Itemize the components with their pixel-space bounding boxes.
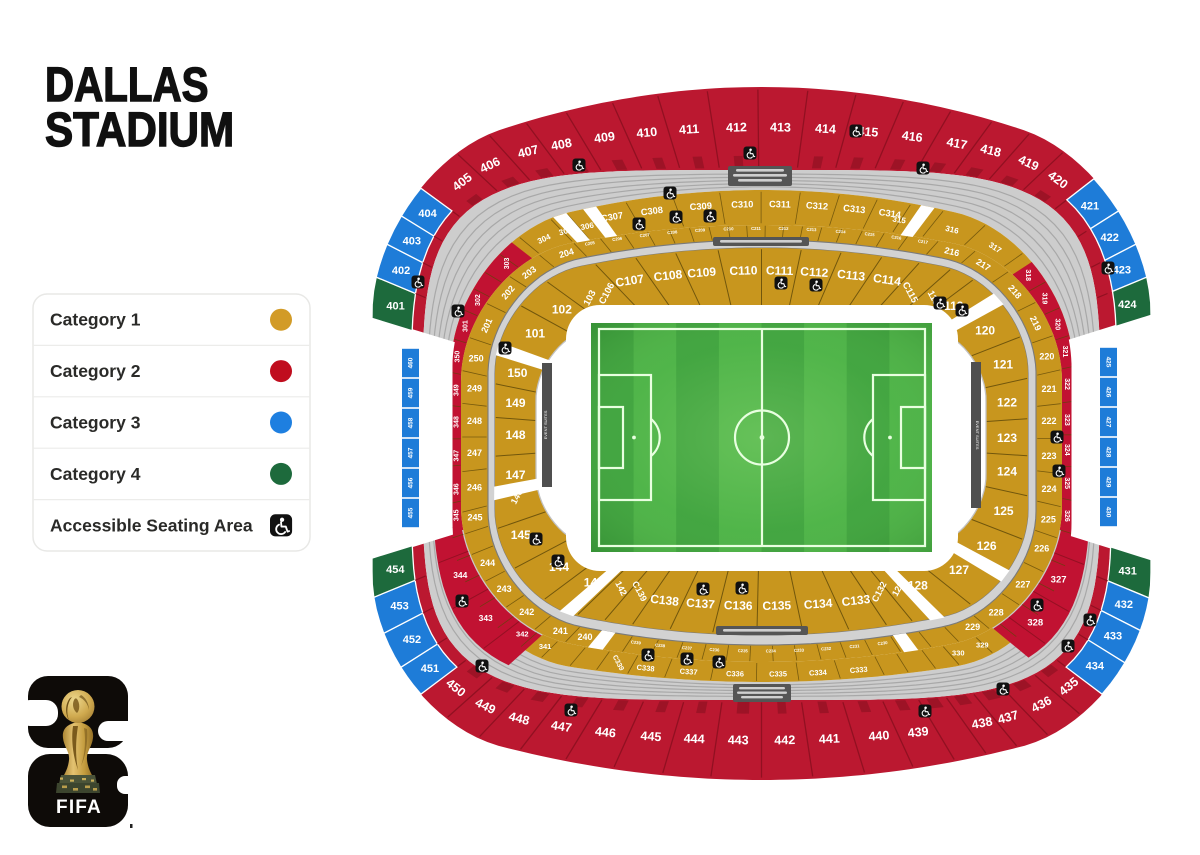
svg-text:401: 401 <box>386 301 404 313</box>
svg-text:143: 143 <box>584 576 604 590</box>
svg-text:C112: C112 <box>800 264 829 280</box>
svg-text:C211: C211 <box>751 226 761 231</box>
svg-text:453: 453 <box>390 600 408 612</box>
svg-text:C213: C213 <box>806 227 817 233</box>
svg-text:443: 443 <box>728 733 749 747</box>
svg-text:325: 325 <box>1063 477 1070 489</box>
svg-text:227: 227 <box>1015 579 1030 589</box>
svg-text:STADIUM: STADIUM <box>45 102 234 156</box>
svg-text:C334: C334 <box>809 668 828 678</box>
svg-text:C338: C338 <box>636 663 655 674</box>
svg-text:102: 102 <box>552 303 572 317</box>
svg-text:442: 442 <box>774 733 795 747</box>
svg-text:452: 452 <box>403 634 421 646</box>
svg-text:222: 222 <box>1041 416 1056 426</box>
svg-text:121: 121 <box>993 357 1013 371</box>
svg-text:411: 411 <box>679 122 700 137</box>
svg-text:432: 432 <box>1115 599 1133 611</box>
svg-text:350: 350 <box>455 351 462 363</box>
svg-text:EVENT SUITES: EVENT SUITES <box>543 410 548 439</box>
svg-text:348: 348 <box>454 416 461 428</box>
svg-text:223: 223 <box>1041 451 1056 461</box>
svg-text:319: 319 <box>1041 293 1048 305</box>
svg-text:346: 346 <box>453 483 460 495</box>
svg-text:446: 446 <box>594 724 616 740</box>
svg-text:126: 126 <box>977 539 997 553</box>
svg-text:221: 221 <box>1041 384 1056 394</box>
svg-text:C210: C210 <box>723 226 734 231</box>
svg-text:329: 329 <box>976 640 989 649</box>
svg-text:246: 246 <box>467 483 482 493</box>
svg-text:150: 150 <box>507 366 527 380</box>
svg-text:412: 412 <box>726 120 747 134</box>
svg-text:428: 428 <box>1104 447 1111 458</box>
svg-text:457: 457 <box>408 447 415 458</box>
svg-text:425: 425 <box>1104 357 1111 368</box>
svg-text:245: 245 <box>467 513 482 523</box>
svg-text:343: 343 <box>479 613 493 623</box>
svg-text:347: 347 <box>453 450 460 462</box>
svg-text:Category 2: Category 2 <box>50 361 141 381</box>
svg-text:302: 302 <box>475 294 482 306</box>
svg-text:303: 303 <box>504 257 511 269</box>
svg-text:434: 434 <box>1086 661 1105 673</box>
svg-text:C208: C208 <box>667 229 678 235</box>
svg-text:241: 241 <box>553 626 568 636</box>
svg-text:459: 459 <box>408 387 415 398</box>
svg-text:423: 423 <box>1113 264 1131 276</box>
svg-text:228: 228 <box>989 608 1004 618</box>
svg-text:C111: C111 <box>766 263 794 278</box>
svg-text:451: 451 <box>421 663 439 675</box>
svg-text:341: 341 <box>539 642 552 651</box>
svg-text:240: 240 <box>577 632 592 642</box>
svg-text:C237: C237 <box>682 645 693 651</box>
svg-text:409: 409 <box>593 129 616 146</box>
svg-text:243: 243 <box>497 584 512 594</box>
svg-text:460: 460 <box>408 357 415 368</box>
svg-text:324: 324 <box>1063 444 1070 456</box>
svg-text:C310: C310 <box>731 199 753 210</box>
svg-text:Category 3: Category 3 <box>50 413 141 433</box>
svg-text:C333: C333 <box>849 665 868 675</box>
svg-text:445: 445 <box>640 729 662 744</box>
svg-text:248: 248 <box>467 416 482 426</box>
svg-text:431: 431 <box>1119 566 1137 578</box>
svg-text:410: 410 <box>636 125 658 141</box>
svg-text:C336: C336 <box>726 669 744 678</box>
svg-text:Accessible Seating Area: Accessible Seating Area <box>50 515 253 535</box>
svg-text:441: 441 <box>819 731 840 746</box>
svg-text:328: 328 <box>1027 618 1043 629</box>
svg-text:427: 427 <box>1104 417 1111 428</box>
svg-text:C235: C235 <box>738 648 749 653</box>
svg-text:330: 330 <box>952 649 965 658</box>
svg-text:149: 149 <box>505 396 525 410</box>
svg-text:124: 124 <box>997 464 1017 478</box>
svg-text:456: 456 <box>408 477 415 488</box>
svg-text:422: 422 <box>1101 232 1119 244</box>
svg-text:C231: C231 <box>849 643 860 649</box>
svg-text:326: 326 <box>1063 510 1070 522</box>
svg-text:323: 323 <box>1063 414 1070 426</box>
svg-text:444: 444 <box>683 731 704 746</box>
svg-text:413: 413 <box>770 120 791 134</box>
svg-text:242: 242 <box>519 607 534 617</box>
svg-text:404: 404 <box>418 208 437 220</box>
svg-text:433: 433 <box>1104 630 1122 642</box>
svg-text:244: 244 <box>480 558 495 568</box>
svg-text:C335: C335 <box>769 669 787 678</box>
svg-text:C134: C134 <box>803 596 833 612</box>
svg-text:127: 127 <box>949 563 969 577</box>
svg-text:320: 320 <box>1053 318 1060 330</box>
svg-text:C311: C311 <box>769 199 791 209</box>
svg-text:342: 342 <box>516 630 529 639</box>
svg-text:327: 327 <box>1051 575 1067 586</box>
svg-text:318: 318 <box>1024 269 1031 281</box>
svg-text:C312: C312 <box>806 200 829 211</box>
svg-text:122: 122 <box>997 395 1017 409</box>
svg-text:EVENT SUITES: EVENT SUITES <box>975 421 980 450</box>
svg-text:C233: C233 <box>794 647 805 652</box>
svg-text:414: 414 <box>815 121 837 136</box>
svg-text:426: 426 <box>1104 387 1111 398</box>
svg-text:C234: C234 <box>766 648 777 653</box>
svg-text:C212: C212 <box>778 226 789 231</box>
svg-text:224: 224 <box>1041 484 1056 494</box>
svg-text:C137: C137 <box>686 596 716 612</box>
svg-text:429: 429 <box>1104 477 1111 488</box>
svg-text:454: 454 <box>386 564 405 576</box>
svg-text:120: 120 <box>975 324 995 338</box>
svg-text:128: 128 <box>908 579 928 593</box>
svg-text:C337: C337 <box>679 667 697 677</box>
svg-text:229: 229 <box>965 622 980 632</box>
svg-text:225: 225 <box>1041 514 1056 524</box>
svg-text:C236: C236 <box>709 647 720 653</box>
svg-text:147: 147 <box>505 468 525 482</box>
svg-text:Category 4: Category 4 <box>50 464 141 484</box>
svg-text:322: 322 <box>1063 378 1070 390</box>
svg-text:250: 250 <box>469 354 484 364</box>
svg-text:439: 439 <box>907 724 929 740</box>
svg-text:C135: C135 <box>762 598 791 613</box>
svg-text:C109: C109 <box>687 265 717 281</box>
svg-text:C214: C214 <box>835 229 846 235</box>
svg-text:101: 101 <box>525 327 545 341</box>
svg-text:125: 125 <box>994 504 1014 518</box>
svg-text:458: 458 <box>408 417 415 428</box>
svg-text:402: 402 <box>392 265 410 277</box>
svg-text:301: 301 <box>462 320 469 332</box>
svg-text:455: 455 <box>408 507 415 518</box>
svg-text:421: 421 <box>1081 201 1099 213</box>
svg-text:FIFA: FIFA <box>56 797 102 818</box>
svg-text:C232: C232 <box>821 646 832 652</box>
svg-text:C209: C209 <box>695 227 706 233</box>
svg-text:249: 249 <box>467 384 482 394</box>
svg-text:440: 440 <box>868 728 890 744</box>
svg-text:220: 220 <box>1039 351 1054 361</box>
svg-text:345: 345 <box>454 509 461 521</box>
svg-text:349: 349 <box>454 384 461 396</box>
svg-text:123: 123 <box>997 431 1017 445</box>
svg-text:C136: C136 <box>724 598 753 613</box>
svg-text:403: 403 <box>403 235 421 247</box>
svg-text:C113: C113 <box>837 267 867 284</box>
svg-text:344: 344 <box>453 570 467 580</box>
svg-text:424: 424 <box>1118 299 1137 311</box>
svg-text:226: 226 <box>1034 544 1049 554</box>
svg-text:416: 416 <box>901 128 924 145</box>
svg-text:Category 1: Category 1 <box>50 310 141 330</box>
svg-text:321: 321 <box>1061 346 1068 358</box>
svg-text:C110: C110 <box>729 263 758 278</box>
svg-text:148: 148 <box>505 428 525 442</box>
svg-text:247: 247 <box>467 448 482 458</box>
svg-text:145: 145 <box>511 528 531 542</box>
svg-text:430: 430 <box>1104 507 1111 518</box>
